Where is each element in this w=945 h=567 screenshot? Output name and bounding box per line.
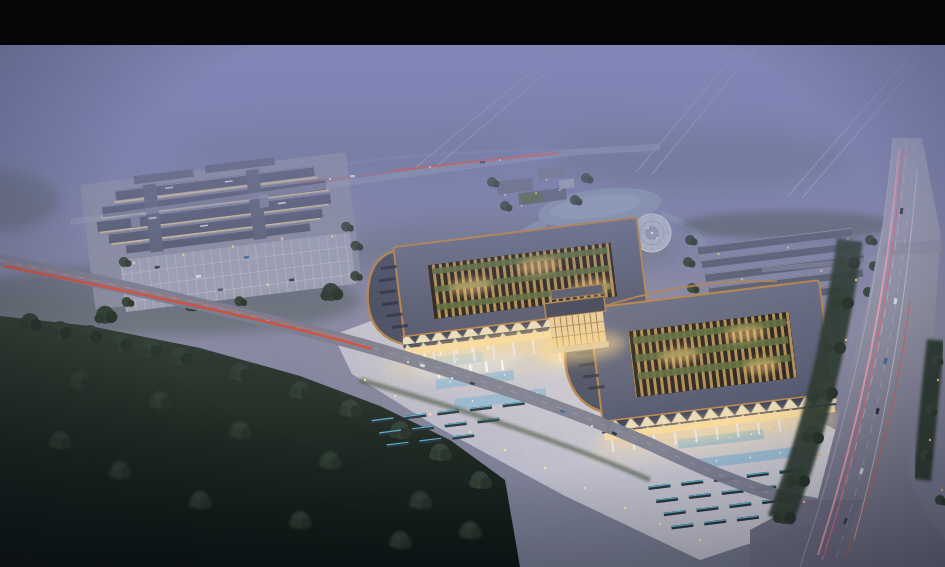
- rendering-canvas: [0, 0, 945, 567]
- fog-overlay: [0, 0, 945, 567]
- letterbox-bar: [0, 0, 945, 45]
